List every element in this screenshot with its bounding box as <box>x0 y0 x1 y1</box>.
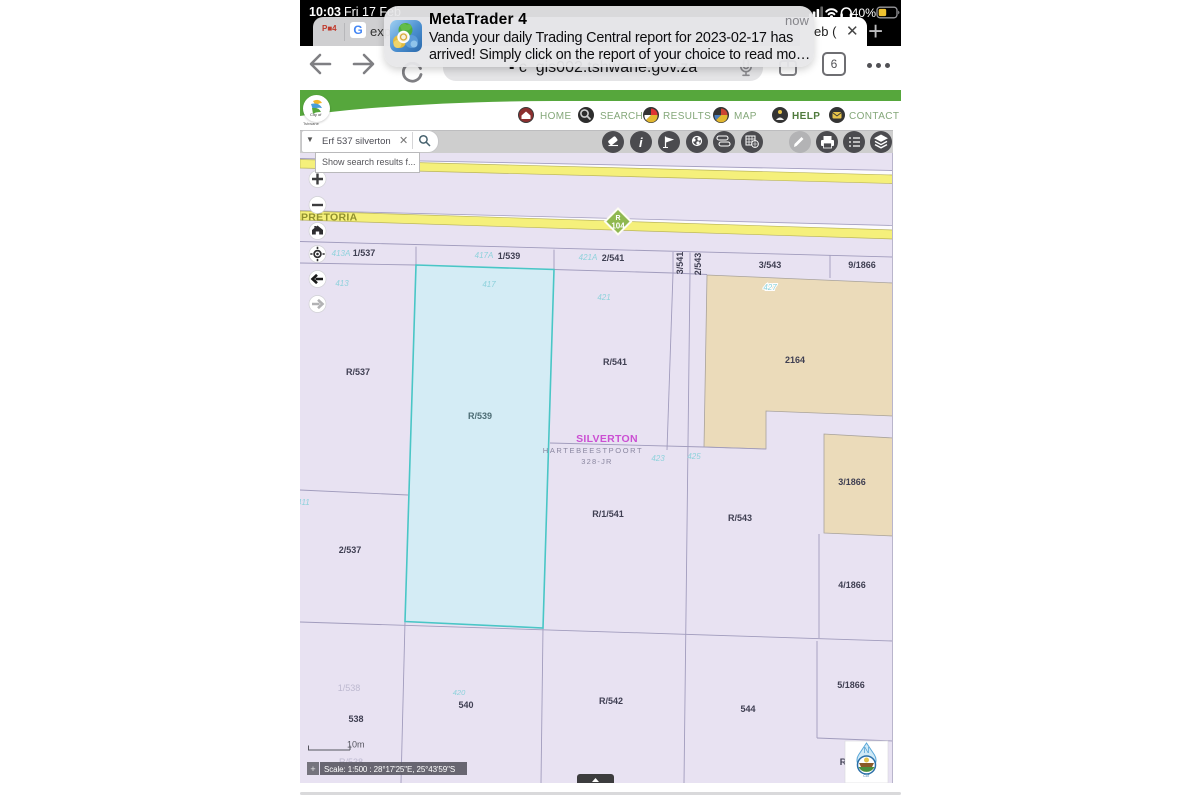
svg-text:R/537: R/537 <box>346 367 370 377</box>
svg-text:2/543: 2/543 <box>693 253 703 276</box>
svg-text:2/537: 2/537 <box>339 545 362 555</box>
svg-text:5/1866: 5/1866 <box>837 680 865 690</box>
svg-text:R/541: R/541 <box>603 357 627 367</box>
svg-text:+: + <box>310 764 315 774</box>
svg-text:420: 420 <box>453 688 466 697</box>
svg-text:1/538: 1/538 <box>338 683 361 693</box>
svg-text:R/542: R/542 <box>599 696 623 706</box>
svg-text:i: i <box>639 135 643 150</box>
svg-text:9/1866: 9/1866 <box>848 260 876 270</box>
svg-text:10m: 10m <box>347 740 365 750</box>
svg-text:3/541: 3/541 <box>675 252 685 275</box>
svg-text:2/541: 2/541 <box>602 253 625 263</box>
svg-text:540: 540 <box>458 700 473 710</box>
svg-text:R/539: R/539 <box>468 411 492 421</box>
svg-text:3/543: 3/543 <box>759 260 782 270</box>
svg-text:421A: 421A <box>579 253 598 262</box>
svg-text:MAP: MAP <box>734 111 757 122</box>
svg-text:R/543: R/543 <box>728 513 752 523</box>
svg-text:425: 425 <box>687 452 701 461</box>
svg-text:N: N <box>864 746 870 755</box>
svg-text:544: 544 <box>740 704 755 714</box>
svg-text:RESULTS: RESULTS <box>663 111 711 122</box>
svg-text:423: 423 <box>651 454 665 463</box>
svg-text:413A: 413A <box>332 249 351 258</box>
svg-text:SILVERTON: SILVERTON <box>576 433 638 445</box>
svg-text:413: 413 <box>335 279 349 288</box>
svg-text:HARTEBEESTPOORT: HARTEBEESTPOORT <box>543 446 643 455</box>
svg-text:411: 411 <box>300 498 310 507</box>
svg-text:417: 417 <box>482 280 496 289</box>
svg-text:CoT: CoT <box>863 774 870 778</box>
svg-text:CONTACT: CONTACT <box>849 111 899 122</box>
svg-text:417A: 417A <box>475 251 494 260</box>
svg-text:104: 104 <box>611 222 625 231</box>
svg-text:HELP: HELP <box>792 111 820 122</box>
svg-text:City of: City of <box>310 112 322 117</box>
svg-text:2164: 2164 <box>785 355 805 365</box>
svg-text:SEARCH: SEARCH <box>600 111 643 122</box>
svg-text:R/1/541: R/1/541 <box>592 509 624 519</box>
svg-text:4/1866: 4/1866 <box>838 580 866 590</box>
svg-text:3/1866: 3/1866 <box>838 477 866 487</box>
svg-text:538: 538 <box>348 714 363 724</box>
svg-text:1/539: 1/539 <box>498 251 521 261</box>
svg-text:1/537: 1/537 <box>353 248 376 258</box>
svg-text:HOME: HOME <box>540 111 572 122</box>
svg-text:328-JR: 328-JR <box>581 457 612 466</box>
svg-text:421: 421 <box>597 293 610 302</box>
svg-text:PRETORIA: PRETORIA <box>301 212 358 224</box>
svg-text:427: 427 <box>763 283 777 292</box>
svg-text:Scale: 1:500 : 28°17'25"E, 25°: Scale: 1:500 : 28°17'25"E, 25°43'59"S <box>324 765 455 774</box>
